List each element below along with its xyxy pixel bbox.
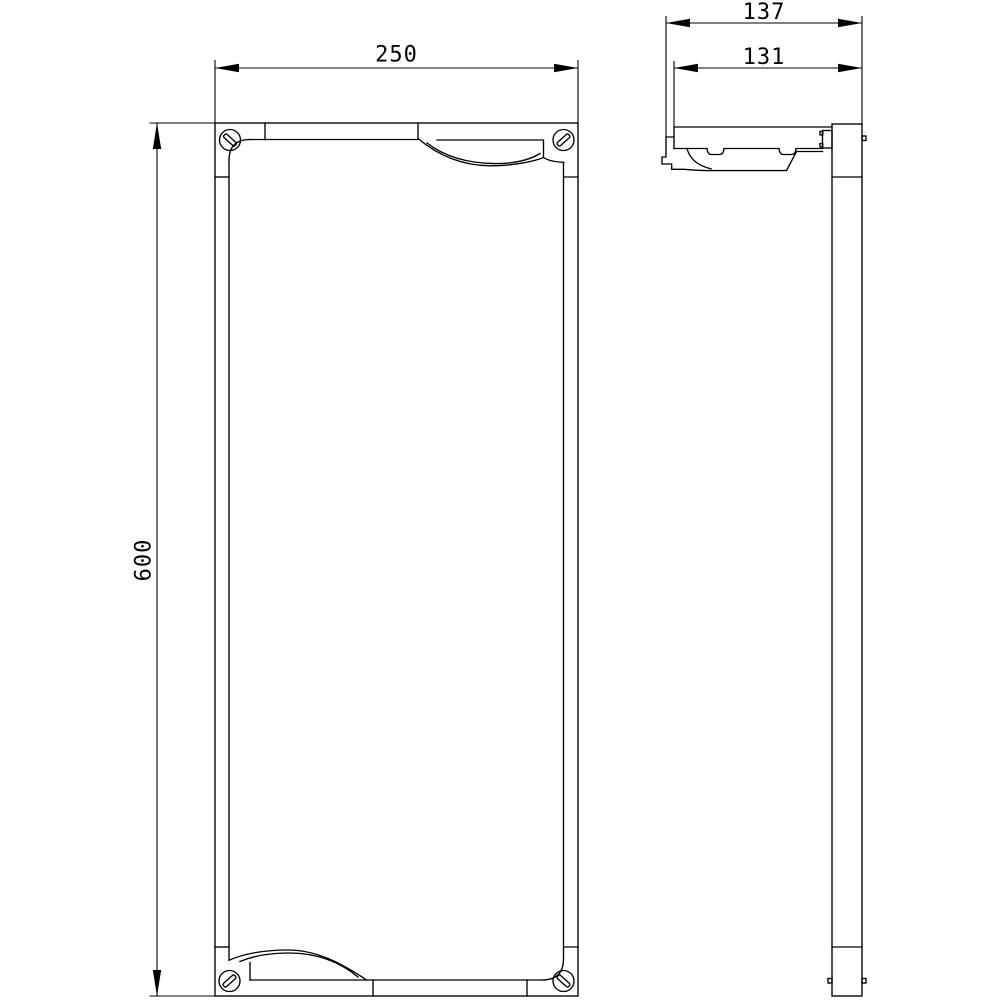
recess-bottom-left-sweep-inner [240, 953, 358, 977]
dimension-value: 250 [375, 43, 418, 68]
screw-bottom-right [553, 971, 574, 992]
bracket-pan-bottom [672, 152, 797, 171]
screw-bottom-left [219, 971, 240, 992]
recess-top-right-sweep [418, 139, 564, 166]
screw-slot-icon [222, 974, 236, 987]
dimension-value: 137 [743, 0, 786, 25]
arrowhead-right-icon [838, 19, 862, 27]
latch-block [823, 131, 833, 149]
dimension-value-rotated: 600 [132, 539, 157, 582]
arrowhead-left-icon [674, 64, 698, 72]
screw-slot-icon [556, 133, 570, 146]
dimension-front-width: 250 [215, 43, 578, 124]
arrowhead-right-icon [554, 64, 578, 72]
dimension-value: 131 [743, 45, 786, 70]
screw-top-right [553, 130, 574, 151]
side-panel-strip [832, 124, 862, 996]
screw-head-icon [220, 130, 241, 151]
side-view [662, 124, 866, 996]
screw-head-icon [219, 971, 240, 992]
front-view [215, 123, 578, 996]
latch-tab-top [820, 132, 823, 135]
arrowhead-left-icon [666, 19, 690, 27]
technical-drawing: 250 600 137 131 [0, 0, 1000, 1000]
front-outer-frame [215, 123, 578, 996]
front-fillet-bottom-right [542, 959, 564, 980]
screw-head-icon [553, 971, 574, 992]
dimension-front-height: 600 [132, 123, 217, 996]
dimension-side-depth-body: 131 [674, 45, 862, 127]
drawing-sheet: 250 600 137 131 [0, 0, 1000, 1000]
arrowhead-down-icon [153, 970, 161, 996]
arrowhead-right-icon [838, 64, 862, 72]
dimension-value: 600 [132, 539, 157, 582]
side-screw-slot-bottom-left [828, 979, 832, 984]
recess-top-right-pocket [437, 140, 544, 158]
screw-head-icon [553, 130, 574, 151]
arrowhead-left-icon [215, 64, 239, 72]
screw-slot-icon [556, 974, 570, 987]
bracket-hook [662, 137, 674, 169]
side-screw-slot-bottom-right [862, 979, 866, 984]
arrowhead-up-icon [153, 123, 161, 149]
side-screw-slot-top-right [862, 136, 866, 141]
screw-top-left [220, 130, 241, 151]
recess-top-right-sweep-inner [427, 143, 540, 164]
latch-tab-bottom [820, 144, 823, 147]
